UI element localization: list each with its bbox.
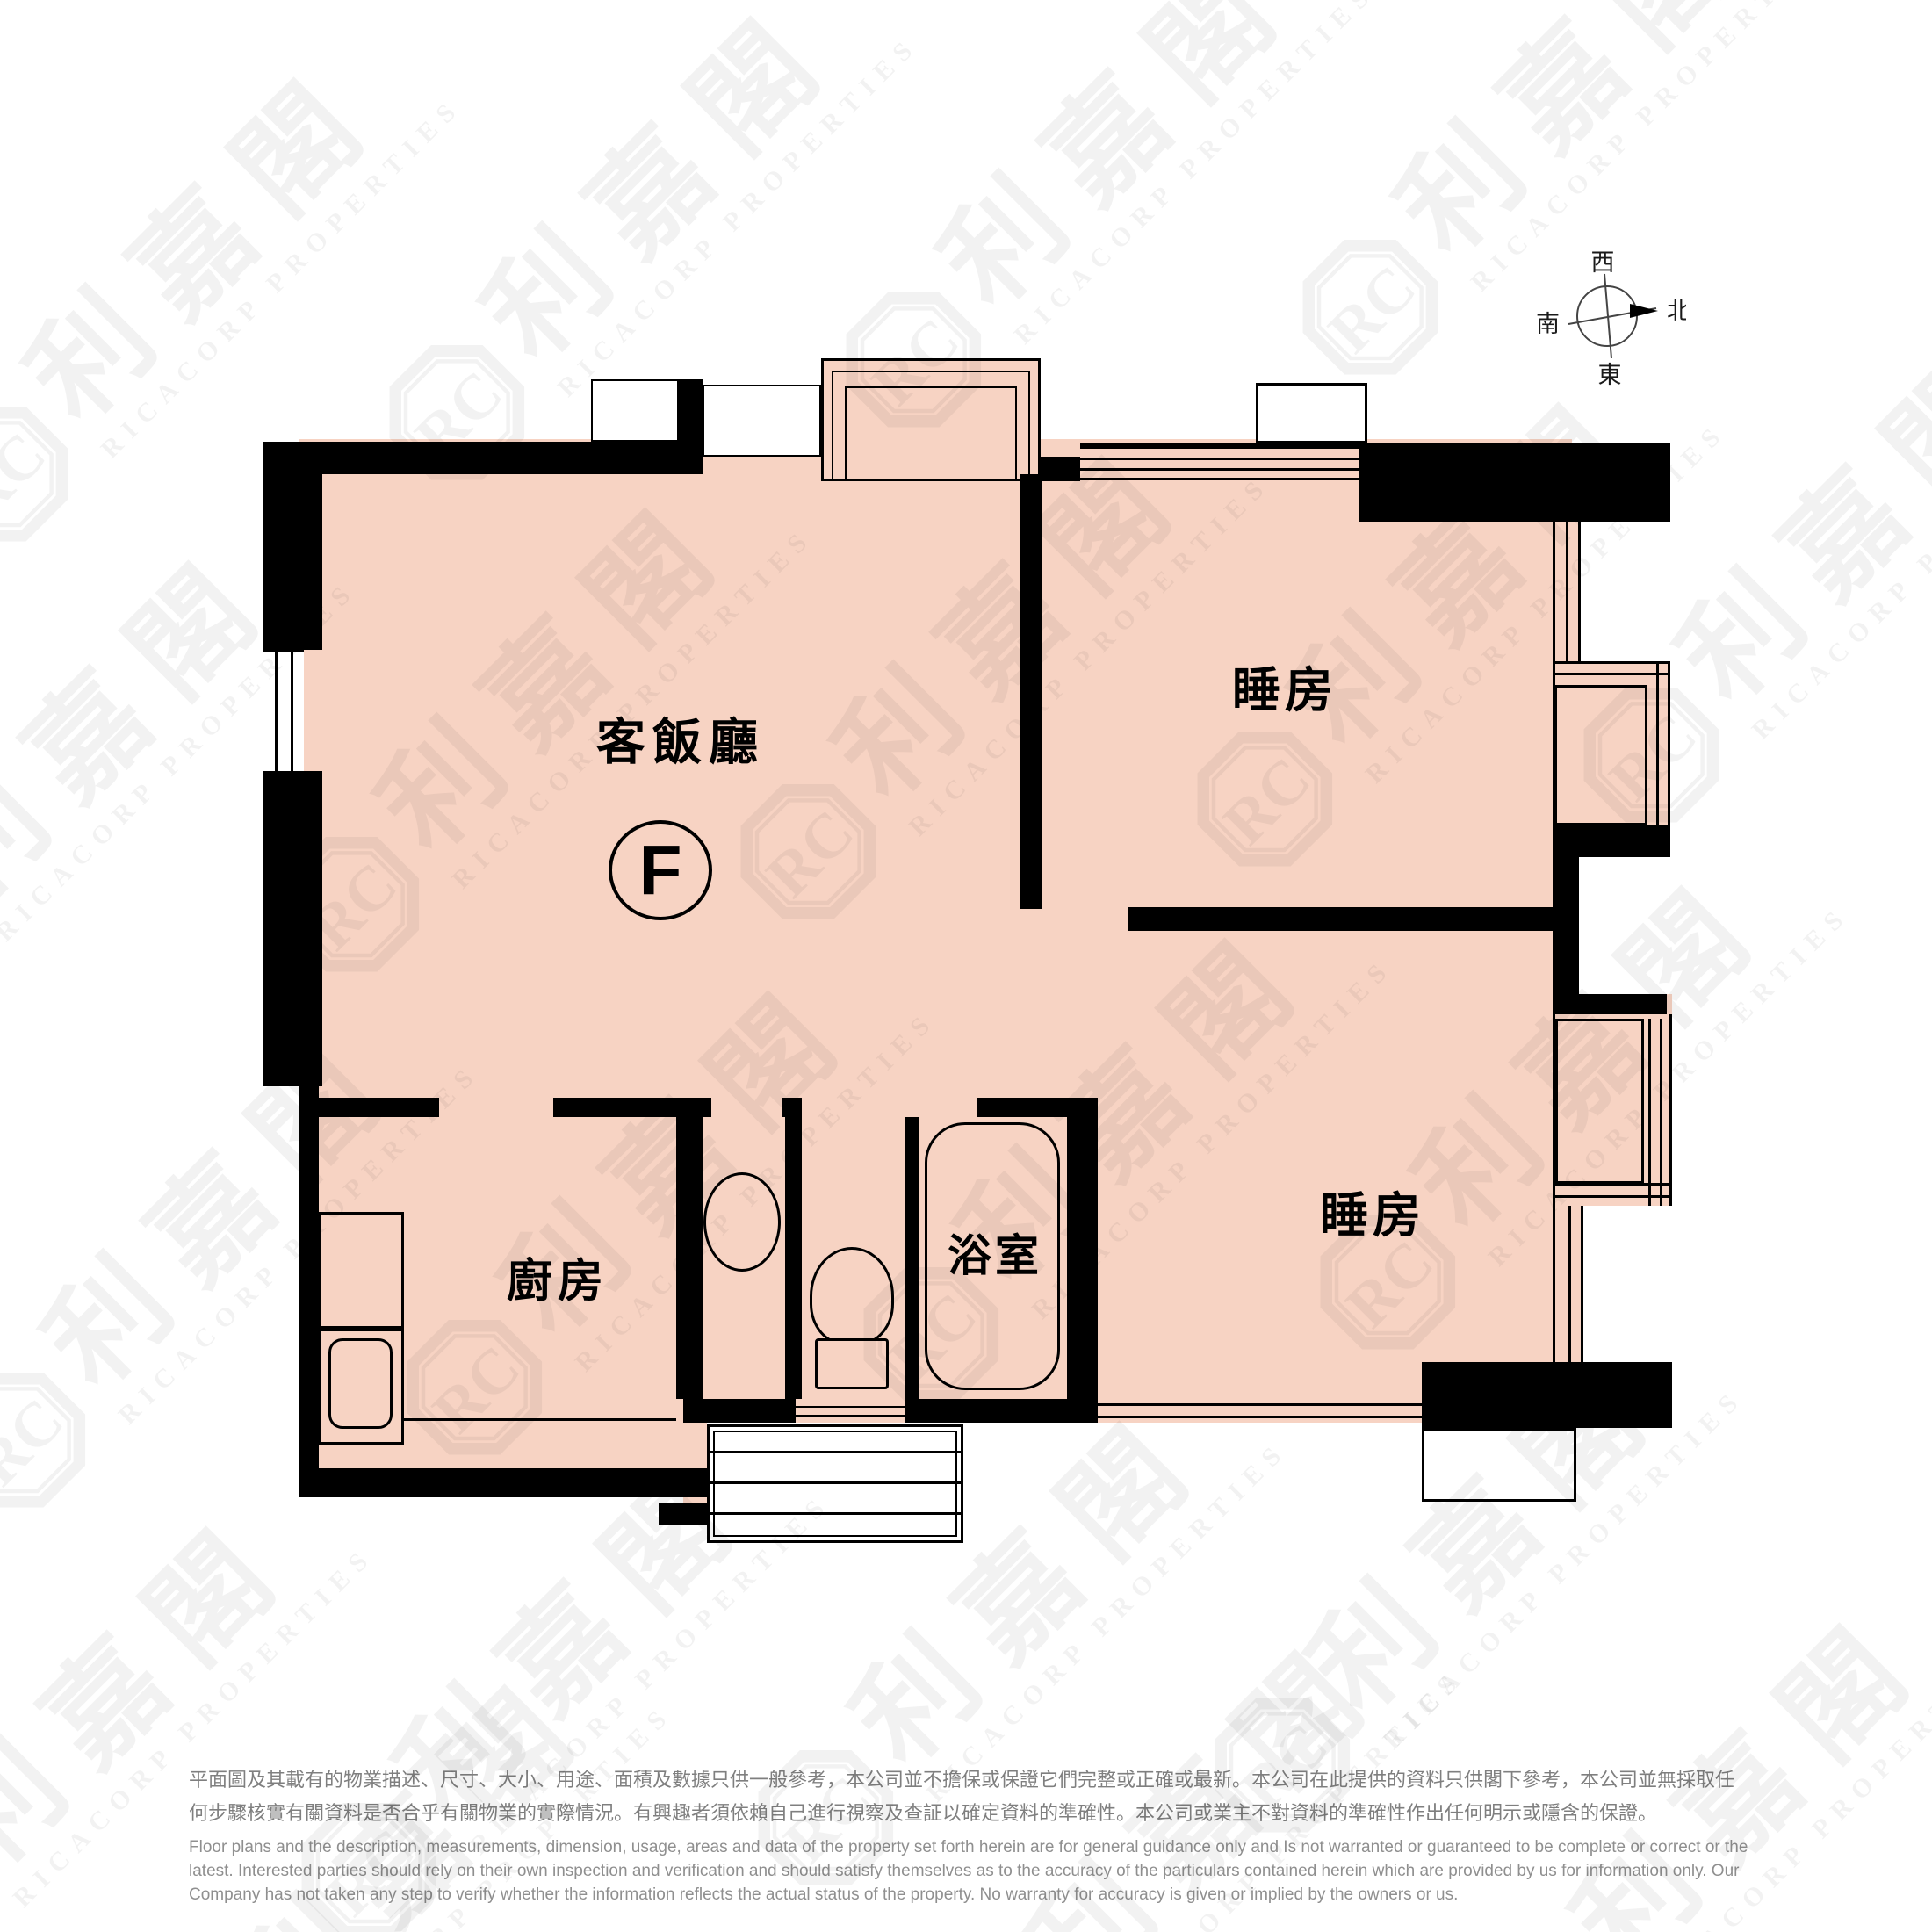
watermark-en-text: RICACORP PROPERTIES bbox=[1008, 0, 1381, 350]
ac-platform-bottom bbox=[1422, 1428, 1576, 1502]
ricacorp-logo-icon: RC bbox=[1277, 214, 1463, 400]
compass-west-label: 西 bbox=[1591, 249, 1615, 276]
room-label-living: 客飯廳 bbox=[596, 703, 765, 775]
kitchen-sink bbox=[328, 1338, 393, 1429]
wall bbox=[1553, 994, 1667, 1014]
bay-window-frame bbox=[845, 386, 1017, 481]
wall bbox=[782, 1098, 802, 1117]
svg-text:RC: RC bbox=[0, 1385, 76, 1499]
bed1-bay-window bbox=[1554, 685, 1647, 825]
wall bbox=[1020, 474, 1042, 909]
light-well-box bbox=[591, 379, 679, 442]
disclaimer-en-line1: Floor plans and the description, measure… bbox=[189, 1835, 1761, 1859]
light-well-box bbox=[703, 385, 821, 457]
window-sill bbox=[304, 650, 322, 771]
wall bbox=[1041, 457, 1080, 481]
wall bbox=[299, 1468, 707, 1497]
wall bbox=[1359, 443, 1670, 522]
right-notch bbox=[1578, 845, 1670, 994]
watermark-cjk-text: 利嘉閣 bbox=[1661, 286, 1932, 720]
bay-step-line bbox=[1554, 661, 1670, 664]
watermark-cjk-text: 利嘉閣 bbox=[466, 0, 900, 378]
svg-text:RC: RC bbox=[1315, 252, 1429, 366]
window-glazing-line bbox=[1080, 478, 1359, 480]
kitchen-counter bbox=[319, 1212, 404, 1329]
ac-platform-top bbox=[1256, 383, 1367, 443]
disclaimer-english: Floor plans and the description, measure… bbox=[189, 1835, 1761, 1907]
bay-step-line bbox=[1555, 1195, 1672, 1198]
window-glazing-line bbox=[275, 650, 278, 771]
bay-edge-line bbox=[1668, 661, 1670, 828]
wall bbox=[1553, 825, 1579, 1014]
compass-north-arrow bbox=[1630, 304, 1658, 318]
watermark-en-text: RICACORP PROPERTIES bbox=[1746, 372, 1932, 746]
bay-step-line bbox=[1555, 1183, 1672, 1186]
wall bbox=[299, 1086, 319, 1497]
compass-north-label: 北 bbox=[1667, 298, 1686, 324]
entrance-door bbox=[796, 1399, 905, 1423]
wall bbox=[683, 1399, 796, 1423]
ricacorp-logo-icon: RC bbox=[0, 381, 93, 567]
bed2-bay-window bbox=[1555, 1019, 1644, 1184]
disclaimer-chinese: 平面圖及其載有的物業描述、尺寸、大小、用途、面積及數據只供一般參考，本公司並不擔… bbox=[189, 1763, 1761, 1830]
disclaimer-zh-line2: 何步驟核實有關資料是否合乎有關物業的實際情況。有興趣者須依賴自己進行視察及查証以… bbox=[189, 1797, 1761, 1830]
disclaimer-zh-line1: 平面圖及其載有的物業描述、尺寸、大小、用途、面積及數據只供一般參考，本公司並不擔… bbox=[189, 1763, 1761, 1797]
wall bbox=[1128, 907, 1561, 931]
room-label-bathroom: 浴室 bbox=[948, 1221, 1042, 1284]
wall bbox=[679, 379, 703, 474]
bay-edge-line bbox=[1568, 1206, 1571, 1362]
stair-step-line bbox=[707, 1512, 963, 1515]
watermark-en-text: RICACORP PROPERTIES bbox=[551, 30, 925, 403]
compass-east-label: 東 bbox=[1598, 362, 1622, 388]
bay-edge-line bbox=[1581, 1206, 1583, 1362]
wall bbox=[1422, 1362, 1672, 1428]
wall bbox=[263, 442, 322, 652]
bay-edge-line bbox=[1669, 1014, 1672, 1206]
bay-edge-line bbox=[1648, 1019, 1651, 1206]
wall bbox=[905, 1399, 1098, 1423]
room-label-kitchen: 廚房 bbox=[507, 1244, 609, 1310]
ricacorp-logo-icon: RC bbox=[0, 1347, 111, 1533]
wall bbox=[905, 1117, 919, 1399]
watermark-en-text: RICACORP PROPERTIES bbox=[95, 91, 468, 465]
room-label-bedroom1: 睡房 bbox=[1232, 651, 1337, 721]
unit-letter: F bbox=[639, 835, 682, 905]
watermark-cjk-text: 利嘉閣 bbox=[1380, 0, 1813, 273]
stair-step-line bbox=[707, 1481, 963, 1484]
compass: 西 北 南 東 bbox=[1528, 235, 1686, 393]
toilet-bowl bbox=[810, 1247, 894, 1345]
washbasin-oval bbox=[703, 1172, 781, 1272]
wall bbox=[785, 1117, 802, 1399]
disclaimer-en-line2: latest. Interested parties should rely o… bbox=[189, 1859, 1761, 1883]
ricacorp-logo-icon: RC bbox=[0, 1830, 5, 1932]
entrance-door-line bbox=[796, 1415, 905, 1417]
wall bbox=[977, 1098, 1067, 1117]
bay-edge-line bbox=[1660, 1019, 1662, 1206]
watermark-cjk-text: 利嘉閣 bbox=[923, 0, 1357, 326]
disclaimer-en-line3: Company has not taken any step to verify… bbox=[189, 1883, 1761, 1907]
floor-plan-page: 客飯廳 F 睡房 睡房 廚房 浴室 西 北 南 東 RC 利嘉閣 RICACOR… bbox=[0, 0, 1932, 1932]
wall bbox=[263, 771, 322, 1086]
room-label-bedroom2: 睡房 bbox=[1320, 1176, 1425, 1246]
bay-step-line bbox=[1554, 673, 1670, 675]
wall bbox=[553, 1098, 694, 1117]
entrance-door-line bbox=[796, 1406, 905, 1408]
svg-text:RC: RC bbox=[0, 419, 59, 533]
wall bbox=[1067, 1098, 1098, 1423]
window-glazing-line bbox=[291, 650, 293, 771]
wall bbox=[676, 1117, 703, 1399]
kitchen-line bbox=[404, 1418, 676, 1421]
ricacorp-logo-icon: RC bbox=[1453, 1927, 1639, 1932]
stair-step-line bbox=[707, 1451, 963, 1453]
bed2-bay-recess bbox=[1581, 1206, 1672, 1362]
window-glazing-line bbox=[1080, 458, 1359, 460]
bay-edge-line bbox=[1566, 522, 1568, 664]
wall bbox=[676, 1098, 711, 1117]
bed1-bay-recess bbox=[1578, 522, 1670, 661]
window-glazing-line bbox=[1098, 1416, 1422, 1418]
watermark-en-text: RICACORP PROPERTIES bbox=[920, 1435, 1294, 1808]
watermark-cjk-text: 利嘉閣 bbox=[10, 5, 443, 439]
window-glazing-line bbox=[1098, 1403, 1422, 1406]
compass-south-label: 南 bbox=[1536, 311, 1560, 337]
unit-circle: F bbox=[609, 820, 712, 920]
wall bbox=[659, 1503, 707, 1525]
bay-edge-line bbox=[1656, 661, 1659, 828]
toilet-base bbox=[815, 1338, 889, 1389]
bay-edge-line bbox=[1578, 522, 1581, 664]
wall bbox=[263, 442, 694, 474]
wall bbox=[319, 1098, 439, 1117]
window-glazing-line bbox=[1080, 468, 1359, 471]
window-band bbox=[1080, 449, 1359, 478]
